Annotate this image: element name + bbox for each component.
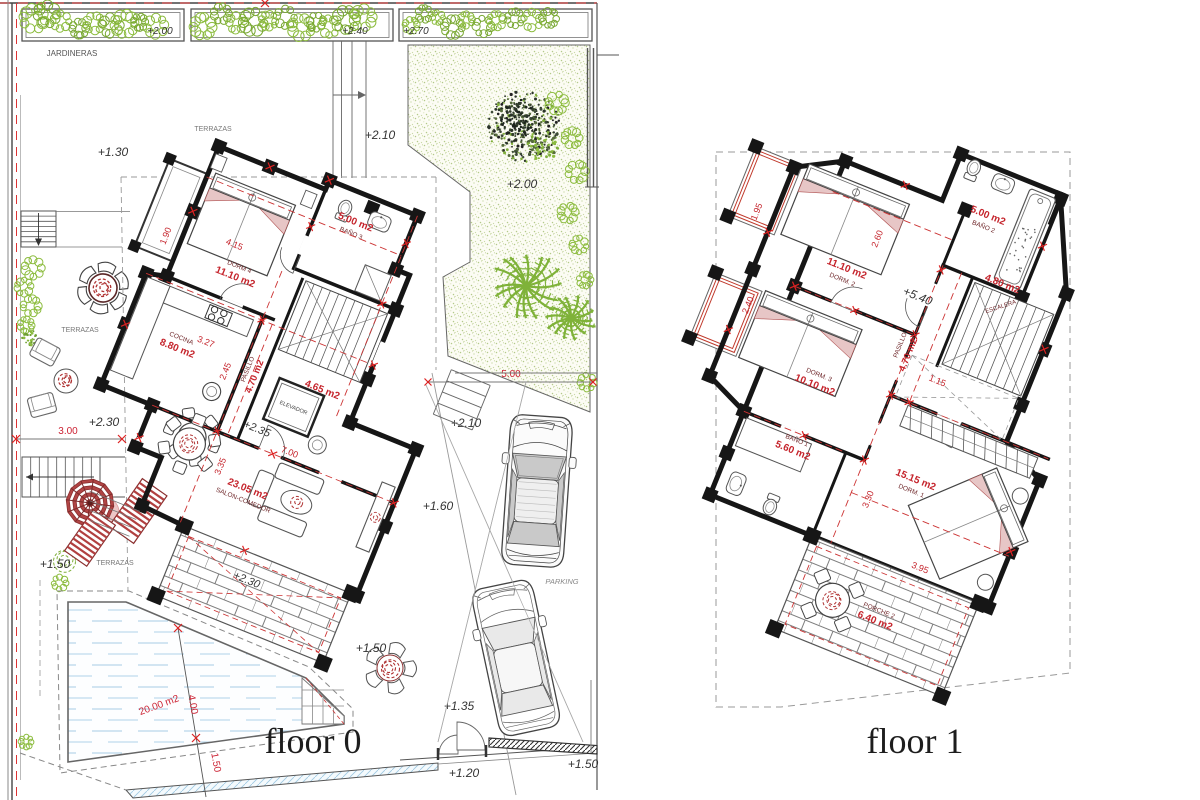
svg-text:+2.30: +2.30 (89, 415, 120, 429)
svg-text:TERRAZAS: TERRAZAS (96, 560, 134, 567)
svg-text:3.00: 3.00 (58, 426, 78, 437)
svg-text:+1.50: +1.50 (40, 557, 71, 571)
svg-text:+2.70: +2.70 (403, 26, 429, 37)
svg-text:5.00: 5.00 (501, 369, 521, 380)
svg-text:+2.00: +2.00 (147, 26, 173, 37)
svg-text:+2.10: +2.10 (365, 128, 396, 142)
svg-text:+2.00: +2.00 (507, 177, 538, 191)
svg-text:PARKING: PARKING (545, 577, 578, 586)
svg-text:+1.20: +1.20 (449, 766, 480, 780)
svg-text:floor 0: floor 0 (265, 721, 362, 761)
svg-text:JARDINERAS: JARDINERAS (47, 49, 98, 58)
svg-text:TERRAZAS: TERRAZAS (61, 327, 99, 334)
svg-text:+1.30: +1.30 (98, 145, 129, 159)
svg-text:TERRAZAS: TERRAZAS (194, 126, 232, 133)
svg-text:+1.50: +1.50 (568, 757, 599, 771)
svg-text:+1.50: +1.50 (356, 641, 387, 655)
svg-text:+1.35: +1.35 (444, 699, 475, 713)
svg-text:floor 1: floor 1 (867, 721, 964, 761)
svg-text:+2.40: +2.40 (342, 26, 368, 37)
svg-text:+1.60: +1.60 (423, 499, 454, 513)
